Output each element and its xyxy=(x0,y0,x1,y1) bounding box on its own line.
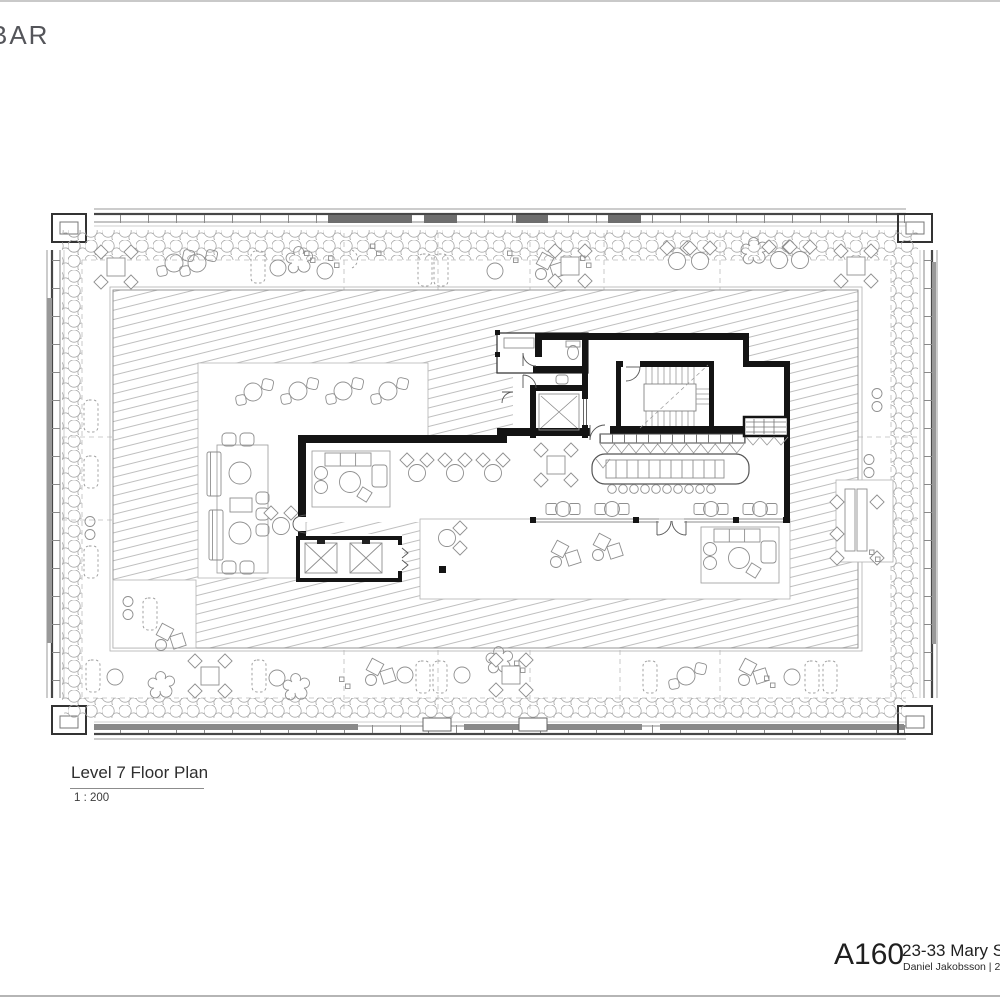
daybed xyxy=(86,660,100,692)
project-name: 23-33 Mary Stre xyxy=(902,941,1000,961)
terrace-cutout-east xyxy=(836,480,893,562)
drawing-title-underline xyxy=(70,788,204,789)
drawing-scale: 1 : 200 xyxy=(74,792,109,804)
chair-pair xyxy=(872,389,882,412)
daybed xyxy=(643,661,657,693)
daybed xyxy=(84,546,98,578)
hall-north-wall xyxy=(298,435,507,443)
dining-set xyxy=(188,654,232,698)
daybed xyxy=(805,661,819,693)
lounge-chairs xyxy=(739,658,770,685)
cafe-set xyxy=(668,662,707,690)
daybed xyxy=(84,400,98,432)
author-credit: Daniel Jakobsson | 28/0 xyxy=(903,961,1000,973)
round-table xyxy=(317,263,333,279)
daybed xyxy=(84,456,98,488)
daybed xyxy=(252,660,266,692)
daybed xyxy=(433,661,447,693)
round-table xyxy=(107,669,123,685)
drawing-title: Level 7 Floor Plan xyxy=(71,763,208,783)
terrace-lamp xyxy=(765,676,776,688)
terrace-cutout-south xyxy=(420,519,790,599)
round-table xyxy=(397,667,413,683)
round-table xyxy=(269,670,285,686)
drawing-sheet: BAR xyxy=(0,0,1000,1000)
corner-notch-bottom-right xyxy=(898,698,954,740)
column xyxy=(439,566,446,573)
chair-pair xyxy=(864,455,874,478)
roof-hatch xyxy=(110,287,893,651)
floor-plan-drawing xyxy=(0,0,1000,1000)
lounge-chairs xyxy=(366,658,397,685)
planter xyxy=(283,674,310,700)
round-table xyxy=(454,667,470,683)
east-wall xyxy=(784,361,790,523)
round-table xyxy=(270,260,286,276)
daybed xyxy=(823,661,837,693)
planter xyxy=(148,672,175,698)
bottom-rule xyxy=(0,995,1000,997)
daybed xyxy=(416,661,430,693)
service-room xyxy=(298,538,408,580)
terrace-lamp xyxy=(340,677,351,689)
round-table xyxy=(784,669,800,685)
round-table xyxy=(487,263,503,279)
sheet-number: A160 xyxy=(834,938,904,972)
